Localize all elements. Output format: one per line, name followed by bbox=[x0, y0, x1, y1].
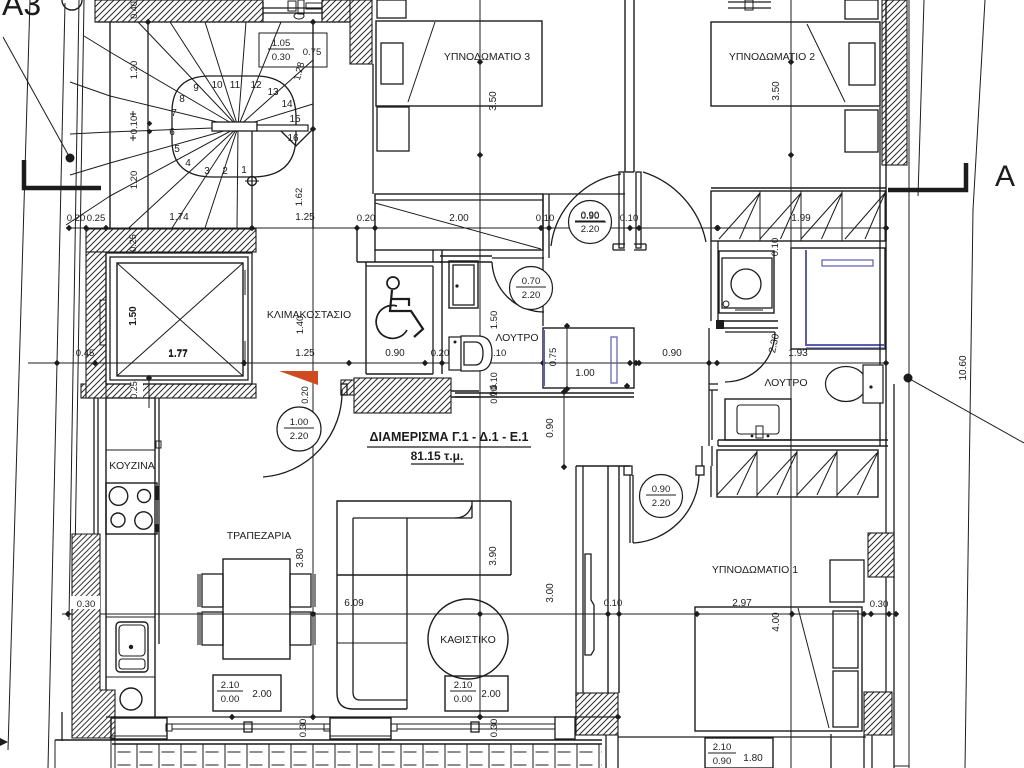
svg-text:13: 13 bbox=[267, 87, 279, 98]
svg-text:15: 15 bbox=[289, 114, 301, 125]
svg-text:0.25: 0.25 bbox=[129, 381, 139, 399]
svg-text:0.30: 0.30 bbox=[298, 719, 309, 738]
svg-text:2.20: 2.20 bbox=[581, 224, 600, 235]
svg-text:1.50: 1.50 bbox=[128, 306, 139, 326]
svg-text:3: 3 bbox=[204, 166, 210, 177]
svg-text:0.75: 0.75 bbox=[548, 348, 559, 367]
svg-text:16: 16 bbox=[287, 133, 299, 144]
svg-text:0.40: 0.40 bbox=[129, 1, 139, 19]
svg-text:1.50: 1.50 bbox=[489, 311, 500, 330]
svg-text:1.20: 1.20 bbox=[129, 61, 140, 80]
svg-text:2.00: 2.00 bbox=[481, 689, 501, 700]
svg-text:1.05: 1.05 bbox=[272, 38, 291, 49]
svg-text:3.50: 3.50 bbox=[488, 91, 499, 111]
svg-text:ΚΑΘΙΣΤΙΚΟ: ΚΑΘΙΣΤΙΚΟ bbox=[440, 634, 496, 646]
svg-text:ΚΟΥΖΙΝΑ: ΚΟΥΖΙΝΑ bbox=[109, 460, 154, 472]
svg-text:ΥΠΝΟΔΩΜΑΤΙΟ 1: ΥΠΝΟΔΩΜΑΤΙΟ 1 bbox=[712, 564, 798, 576]
svg-text:0.20: 0.20 bbox=[67, 213, 86, 224]
svg-text:ΥΠΝΟΔΩΜΑΤΙΟ 3: ΥΠΝΟΔΩΜΑΤΙΟ 3 bbox=[444, 51, 530, 63]
svg-text:0.25: 0.25 bbox=[128, 234, 138, 252]
svg-text:2.10: 2.10 bbox=[454, 680, 473, 691]
svg-text:ΛΟΥΤΡΟ: ΛΟΥΤΡΟ bbox=[764, 377, 807, 389]
svg-text:0.45: 0.45 bbox=[76, 348, 95, 359]
svg-text:0.00: 0.00 bbox=[454, 694, 473, 705]
svg-text:0.30: 0.30 bbox=[77, 599, 96, 610]
svg-text:1.80: 1.80 bbox=[743, 753, 763, 764]
svg-text:2.10: 2.10 bbox=[221, 680, 240, 691]
svg-text:0.75: 0.75 bbox=[303, 47, 322, 58]
svg-text:0.10: 0.10 bbox=[129, 116, 140, 135]
svg-text:1.20: 1.20 bbox=[129, 171, 140, 190]
svg-text:0.90: 0.90 bbox=[652, 484, 671, 495]
svg-text:4.00: 4.00 bbox=[771, 612, 782, 632]
svg-text:6: 6 bbox=[169, 127, 175, 138]
svg-text:0.20: 0.20 bbox=[357, 213, 376, 224]
svg-text:2.20: 2.20 bbox=[652, 498, 671, 509]
svg-text:3.00: 3.00 bbox=[545, 583, 556, 603]
svg-text:12: 12 bbox=[250, 80, 262, 91]
svg-text:9: 9 bbox=[193, 83, 199, 94]
svg-text:0.20: 0.20 bbox=[300, 386, 310, 404]
svg-text:ΛΟΥΤΡΟ: ΛΟΥΤΡΟ bbox=[495, 332, 538, 344]
svg-text:3.80: 3.80 bbox=[295, 548, 306, 568]
svg-text:1.74: 1.74 bbox=[169, 212, 189, 223]
svg-text:0.25: 0.25 bbox=[87, 213, 106, 224]
svg-text:10.60: 10.60 bbox=[958, 355, 969, 380]
svg-text:0.90: 0.90 bbox=[385, 348, 405, 359]
svg-text:A3: A3 bbox=[2, 0, 41, 22]
svg-text:81.15 τ.μ.: 81.15 τ.μ. bbox=[411, 449, 464, 463]
svg-text:4: 4 bbox=[185, 158, 191, 169]
svg-text:1.00: 1.00 bbox=[290, 417, 309, 428]
svg-text:5: 5 bbox=[174, 144, 180, 155]
svg-text:0.90: 0.90 bbox=[545, 418, 556, 438]
svg-text:0.10: 0.10 bbox=[536, 213, 555, 224]
svg-text:0.70: 0.70 bbox=[522, 276, 541, 287]
svg-text:2.20: 2.20 bbox=[290, 431, 309, 442]
svg-text:2.00: 2.00 bbox=[252, 689, 272, 700]
svg-text:1.77: 1.77 bbox=[168, 348, 188, 359]
svg-text:ΚΛΙΜΑΚΟΣΤΑΣΙΟ: ΚΛΙΜΑΚΟΣΤΑΣΙΟ bbox=[267, 309, 351, 321]
svg-text:0.30: 0.30 bbox=[489, 719, 500, 738]
svg-text:ΔΙΑΜΕΡΙΣΜΑ Γ.1 - Δ.1 - Ε.1: ΔΙΑΜΕΡΙΣΜΑ Γ.1 - Δ.1 - Ε.1 bbox=[370, 430, 529, 444]
svg-text:7: 7 bbox=[171, 108, 177, 119]
svg-text:ΥΠΝΟΔΩΜΑΤΙΟ 2: ΥΠΝΟΔΩΜΑΤΙΟ 2 bbox=[729, 51, 815, 63]
svg-text:1: 1 bbox=[241, 165, 247, 176]
svg-text:1.62: 1.62 bbox=[294, 188, 305, 207]
svg-text:2.00: 2.00 bbox=[449, 213, 469, 224]
svg-text:1.25: 1.25 bbox=[295, 212, 315, 223]
svg-text:2: 2 bbox=[222, 166, 228, 177]
svg-text:6.09: 6.09 bbox=[344, 598, 364, 609]
svg-text:1.25: 1.25 bbox=[295, 348, 315, 359]
svg-text:0.1: 0.1 bbox=[488, 384, 498, 397]
svg-text:0.90: 0.90 bbox=[713, 756, 732, 767]
svg-text:11: 11 bbox=[230, 80, 241, 91]
svg-text:8: 8 bbox=[179, 94, 185, 105]
svg-text:2.10: 2.10 bbox=[713, 742, 732, 753]
svg-text:ΤΡΑΠΕΖΑΡΙΑ: ΤΡΑΠΕΖΑΡΙΑ bbox=[227, 530, 292, 542]
svg-text:2.20: 2.20 bbox=[522, 290, 541, 301]
svg-text:0.90: 0.90 bbox=[662, 348, 682, 359]
svg-text:0.00: 0.00 bbox=[221, 694, 240, 705]
svg-text:3.50: 3.50 bbox=[771, 81, 782, 101]
svg-text:10: 10 bbox=[211, 80, 223, 91]
svg-text:0.10: 0.10 bbox=[770, 238, 781, 257]
svg-text:14: 14 bbox=[281, 99, 293, 110]
svg-text:0.30: 0.30 bbox=[272, 52, 291, 63]
svg-text:A: A bbox=[995, 160, 1015, 193]
svg-text:0.90: 0.90 bbox=[581, 211, 600, 222]
svg-text:3.90: 3.90 bbox=[488, 546, 499, 566]
svg-text:1.00: 1.00 bbox=[575, 368, 595, 379]
svg-text:1.40: 1.40 bbox=[295, 316, 306, 335]
